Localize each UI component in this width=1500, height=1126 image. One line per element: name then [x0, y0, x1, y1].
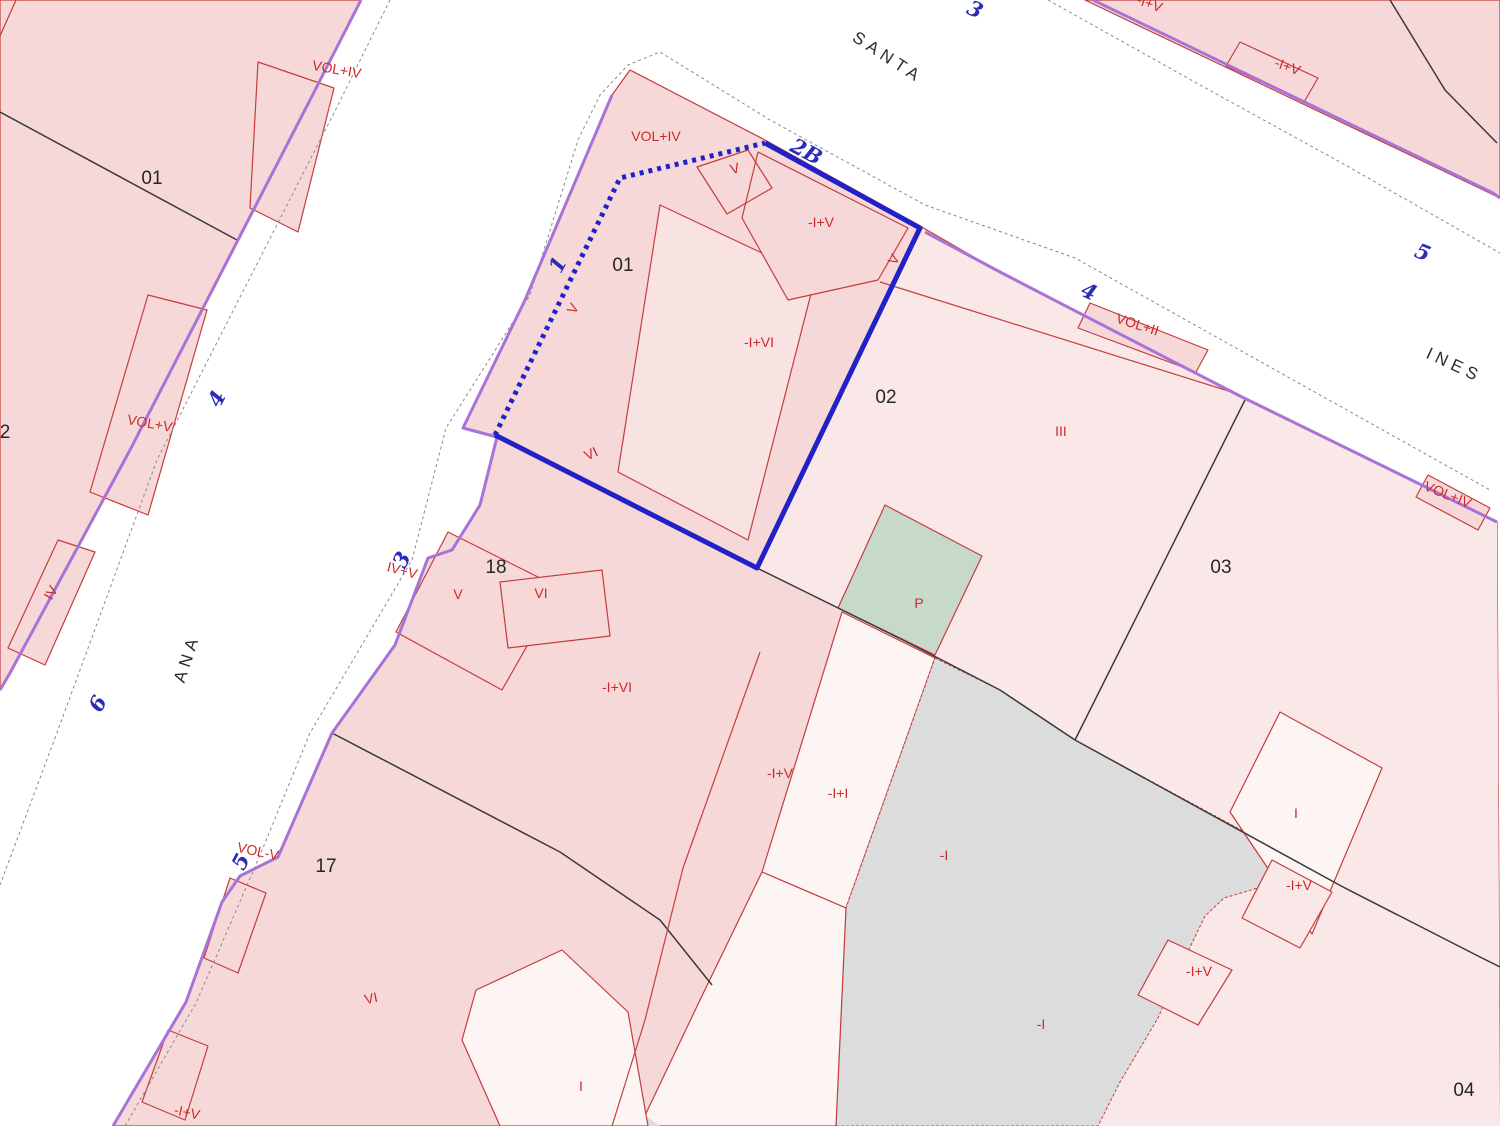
construction-label: -I+V [767, 765, 794, 781]
construction-label: -I+VI [602, 679, 632, 695]
parcel-number: 03 [1210, 557, 1231, 578]
address-number: 6 [83, 691, 112, 716]
parcel-number: 02 [875, 387, 896, 408]
construction-label: VI [534, 585, 547, 601]
address-number: 4 [1077, 277, 1101, 306]
building-west-1 [250, 62, 334, 232]
street-label: SANTA [849, 28, 927, 88]
parcel-number: 01 [612, 255, 633, 276]
parcel-number: 17 [315, 856, 336, 877]
street-label: INES [1423, 344, 1485, 386]
parcel-number: 04 [1453, 1080, 1475, 1101]
construction-label: -I [1037, 1016, 1046, 1032]
building-vi-parcel-18 [500, 570, 610, 648]
address-number: 3 [963, 0, 987, 24]
address-number: 5 [1411, 238, 1434, 267]
construction-label: -I+V [1186, 963, 1213, 979]
street-label: ANA [170, 632, 204, 685]
construction-label: I [579, 1078, 583, 1094]
parcel-number: 2 [0, 422, 10, 443]
cadastral-map-viewport[interactable]: SANTAINESANA012010203041718VOL+IVVOL+IV-… [0, 0, 1500, 1126]
construction-label: P [914, 595, 923, 611]
construction-label: VOL+IV [631, 128, 681, 144]
construction-label: -I+VI [744, 334, 774, 350]
construction-label: III [1055, 423, 1067, 439]
construction-label: I [1294, 805, 1298, 821]
parcel-number: 01 [141, 168, 162, 189]
construction-label: V [453, 586, 463, 602]
block-northeast[interactable] [1085, 0, 1500, 198]
cadastral-map[interactable]: SANTAINESANA012010203041718VOL+IVVOL+IV-… [0, 0, 1500, 1126]
construction-label: -I [940, 847, 949, 863]
parcel-number: 18 [485, 557, 506, 578]
address-number: 4 [202, 386, 231, 411]
construction-label: -I+I [828, 785, 849, 801]
construction-label: -I+V [1286, 877, 1313, 893]
construction-label: -I+V [808, 214, 835, 230]
